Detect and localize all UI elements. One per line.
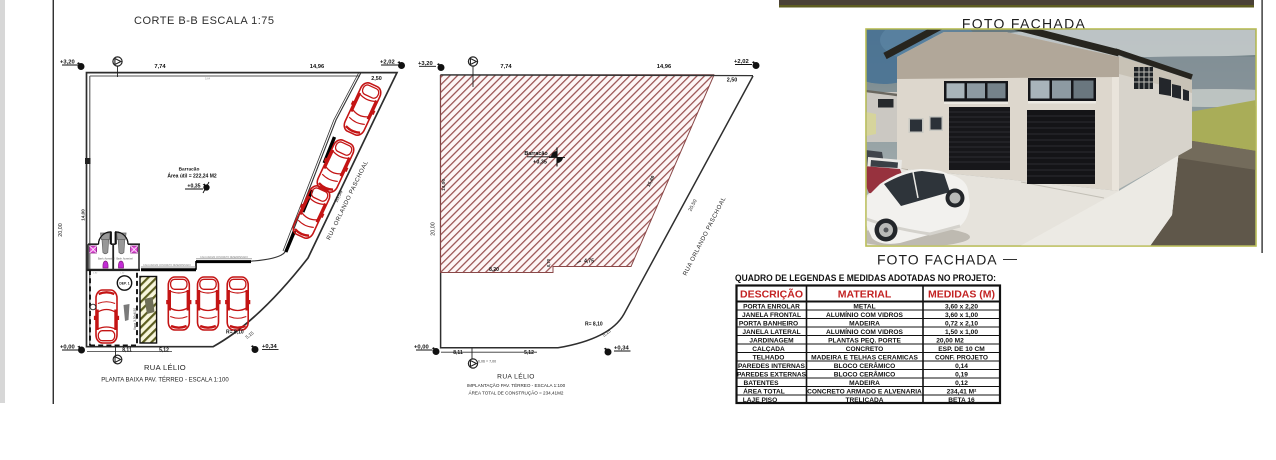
svg-text:+0,35: +0,35 bbox=[187, 183, 200, 189]
svg-text:3,60 x 1,00: 3,60 x 1,00 bbox=[945, 312, 978, 319]
svg-text:CALÇADA: CALÇADA bbox=[752, 346, 785, 353]
svg-text:MADEIRA: MADEIRA bbox=[849, 320, 880, 327]
svg-text:R= 8,10: R= 8,10 bbox=[226, 330, 244, 336]
svg-text:PORTA BANHEIRO: PORTA BANHEIRO bbox=[739, 320, 798, 327]
svg-text:CONF. PROJETO: CONF. PROJETO bbox=[935, 354, 988, 361]
svg-text:3,60 x 2,20: 3,60 x 2,20 bbox=[945, 303, 978, 310]
svg-text:14,96: 14,96 bbox=[657, 64, 672, 70]
svg-text:DEP. 1: DEP. 1 bbox=[119, 282, 129, 286]
svg-text:234,41 M²: 234,41 M² bbox=[947, 388, 977, 395]
svg-text:5,12: 5,12 bbox=[524, 350, 534, 356]
svg-text:Vaga 3,50x6,50: Vaga 3,50x6,50 bbox=[133, 308, 137, 330]
svg-text:8,11: 8,11 bbox=[453, 350, 463, 356]
svg-text:JARDINAGEM: JARDINAGEM bbox=[749, 337, 794, 344]
svg-text:CONCRETO ARMADO E ALVENARIA: CONCRETO ARMADO E ALVENARIA bbox=[807, 388, 922, 395]
svg-text:BLOCO CERÂMICO: BLOCO CERÂMICO bbox=[834, 361, 896, 370]
svg-text:BLOCO CERÂMICO: BLOCO CERÂMICO bbox=[834, 369, 896, 378]
svg-text:PORTA ENROLAR: PORTA ENROLAR bbox=[743, 303, 800, 310]
svg-text:6,06 = 7,00: 6,06 = 7,00 bbox=[478, 360, 496, 364]
svg-text:FOTO FACHADA: FOTO FACHADA bbox=[877, 252, 998, 268]
svg-text:5,12: 5,12 bbox=[159, 347, 169, 353]
svg-text:7,74: 7,74 bbox=[500, 64, 512, 70]
svg-text:14,00: 14,00 bbox=[81, 209, 86, 221]
svg-text:CONCRETO: CONCRETO bbox=[846, 346, 884, 353]
svg-text:ALUMÍNIO COM VIDROS: ALUMÍNIO COM VIDROS bbox=[826, 310, 904, 319]
svg-text:Banh. Acessível: Banh. Acessível bbox=[98, 257, 115, 260]
svg-text:CALCADA EM CONCRETO DESEMPENAD: CALCADA EM CONCRETO DESEMPENADO bbox=[143, 264, 191, 267]
svg-text:14,00: 14,00 bbox=[441, 179, 447, 191]
svg-text:2,50: 2,50 bbox=[371, 76, 382, 82]
svg-text:2,80: 2,80 bbox=[93, 273, 98, 275]
svg-text:PAREDES INTERNAS: PAREDES INTERNAS bbox=[738, 363, 806, 370]
svg-text:MADEIRA: MADEIRA bbox=[849, 380, 880, 387]
svg-text:20,50: 20,50 bbox=[688, 198, 699, 212]
svg-text:1,50: 1,50 bbox=[120, 273, 125, 275]
svg-text:JANELA FRONTAL: JANELA FRONTAL bbox=[742, 312, 801, 319]
svg-text:BETA 16: BETA 16 bbox=[948, 397, 975, 404]
svg-text:20,00 M2: 20,00 M2 bbox=[936, 337, 964, 344]
svg-text:5,15: 5,15 bbox=[245, 330, 255, 340]
svg-text:8,11: 8,11 bbox=[122, 347, 132, 353]
svg-text:MEDIDAS (M): MEDIDAS (M) bbox=[928, 289, 995, 301]
svg-text:ESP. DE 10 CM: ESP. DE 10 CM bbox=[938, 346, 985, 353]
svg-text:Área útil = 222,24 M2: Área útil = 222,24 M2 bbox=[167, 172, 217, 179]
svg-text:CALCADA EM CONCRETO DESEMPENAD: CALCADA EM CONCRETO DESEMPENADO bbox=[200, 256, 248, 259]
svg-text:20,50: 20,50 bbox=[334, 189, 345, 203]
svg-text:BATENTES: BATENTES bbox=[743, 380, 779, 387]
svg-text:DESCRIÇÃO: DESCRIÇÃO bbox=[740, 288, 803, 301]
svg-text:0,19: 0,19 bbox=[955, 371, 968, 378]
svg-text:0,70: 0,70 bbox=[546, 258, 551, 267]
svg-text:METAL: METAL bbox=[853, 303, 875, 310]
svg-text:+0,35: +0,35 bbox=[533, 159, 547, 165]
svg-text:20,00: 20,00 bbox=[431, 222, 437, 236]
svg-text:14,96: 14,96 bbox=[310, 64, 325, 70]
svg-text:0,12: 0,12 bbox=[955, 380, 968, 387]
svg-text:0,72 x 2,10: 0,72 x 2,10 bbox=[945, 320, 978, 327]
svg-text:LAJE PISO: LAJE PISO bbox=[743, 397, 777, 404]
svg-text:TRELIÇADA: TRELIÇADA bbox=[845, 397, 883, 404]
svg-text:Banh. Acessível: Banh. Acessível bbox=[117, 257, 134, 260]
svg-text:MATERIAL: MATERIAL bbox=[838, 289, 892, 301]
svg-text:R= 8,10: R= 8,10 bbox=[585, 322, 603, 328]
svg-text:PLANTA BAIXA PAV. TÉRREO - ESC: PLANTA BAIXA PAV. TÉRREO - ESCALA 1:100 bbox=[101, 377, 229, 384]
svg-text:4,75: 4,75 bbox=[584, 259, 594, 265]
svg-text:5,64: 5,64 bbox=[205, 77, 211, 81]
svg-text:1,50 x 1,00: 1,50 x 1,00 bbox=[945, 329, 978, 336]
svg-text:8,20: 8,20 bbox=[489, 267, 499, 273]
svg-text:20,00: 20,00 bbox=[58, 223, 64, 237]
svg-text:RUA LÉLIO: RUA LÉLIO bbox=[497, 372, 535, 381]
svg-text:CORTE B-B ESCALA 1:75: CORTE B-B ESCALA 1:75 bbox=[134, 15, 275, 27]
svg-text:ÁREA TOTAL: ÁREA TOTAL bbox=[743, 386, 785, 395]
svg-text:PAREDES EXTERNAS: PAREDES EXTERNAS bbox=[737, 371, 807, 378]
svg-text:Barracão: Barracão bbox=[524, 151, 548, 157]
svg-text:ALUMÍNIO COM VIDROS: ALUMÍNIO COM VIDROS bbox=[826, 327, 904, 336]
svg-text:7,74: 7,74 bbox=[154, 64, 166, 70]
svg-text:Barracão: Barracão bbox=[179, 166, 200, 172]
svg-text:2,50: 2,50 bbox=[727, 78, 738, 84]
svg-text:MADEIRA E TELHAS CERAMICAS: MADEIRA E TELHAS CERAMICAS bbox=[811, 354, 918, 361]
svg-text:JANELA LATERAL: JANELA LATERAL bbox=[742, 329, 800, 336]
svg-text:TELHADO: TELHADO bbox=[753, 354, 785, 361]
svg-text:—: — bbox=[1003, 250, 1017, 266]
svg-text:0,14: 0,14 bbox=[955, 363, 968, 370]
svg-text:QUADRO DE LEGENDAS E MEDIDAS: QUADRO DE LEGENDAS E MEDIDAS ADOTADAS NO… bbox=[735, 273, 996, 284]
svg-text:IMPLANTAÇÃO PAV. TÉRREO - ES: IMPLANTAÇÃO PAV. TÉRREO - ESCALA 1:100 bbox=[467, 382, 566, 388]
svg-text:ÁREA TOTAL DE CONSTRUÇÃO = 234: ÁREA TOTAL DE CONSTRUÇÃO = 234,41M2 bbox=[469, 390, 564, 396]
svg-text:RUA LÉLIO: RUA LÉLIO bbox=[144, 363, 186, 372]
svg-text:PLANTAS PEQ. PORTE: PLANTAS PEQ. PORTE bbox=[828, 337, 901, 344]
